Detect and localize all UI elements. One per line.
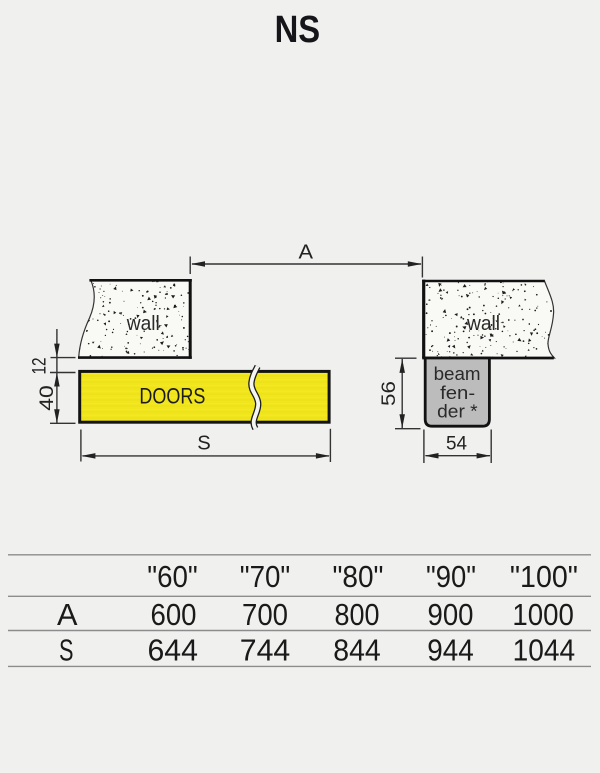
svg-text:"70": "70" (240, 559, 291, 594)
svg-text:"80": "80" (333, 559, 384, 594)
svg-text:A: A (57, 597, 78, 632)
svg-text:1044: 1044 (513, 632, 576, 667)
svg-text:700: 700 (242, 597, 288, 632)
svg-text:"90": "90" (426, 559, 476, 594)
svg-text:"60": "60" (147, 559, 198, 594)
svg-text:644: 644 (147, 632, 198, 667)
svg-text:800: 800 (335, 597, 380, 632)
svg-text:A: A (299, 241, 314, 263)
svg-text:600: 600 (151, 597, 197, 632)
svg-text:NS: NS (275, 9, 321, 51)
svg-text:56: 56 (378, 381, 400, 406)
svg-text:DOORS: DOORS (139, 384, 205, 409)
svg-text:S: S (197, 433, 211, 455)
svg-text:844: 844 (333, 632, 381, 667)
svg-text:der *: der * (437, 401, 478, 422)
svg-text:944: 944 (427, 632, 474, 667)
svg-text:wall: wall (126, 313, 160, 335)
svg-text:S: S (59, 632, 74, 667)
svg-text:40: 40 (36, 385, 58, 411)
svg-text:54: 54 (446, 432, 467, 454)
svg-text:"100": "100" (510, 559, 578, 594)
svg-text:744: 744 (240, 632, 291, 667)
svg-text:12: 12 (29, 358, 51, 375)
svg-text:1000: 1000 (512, 597, 574, 632)
svg-text:wall: wall (466, 313, 500, 335)
svg-text:900: 900 (428, 597, 474, 632)
